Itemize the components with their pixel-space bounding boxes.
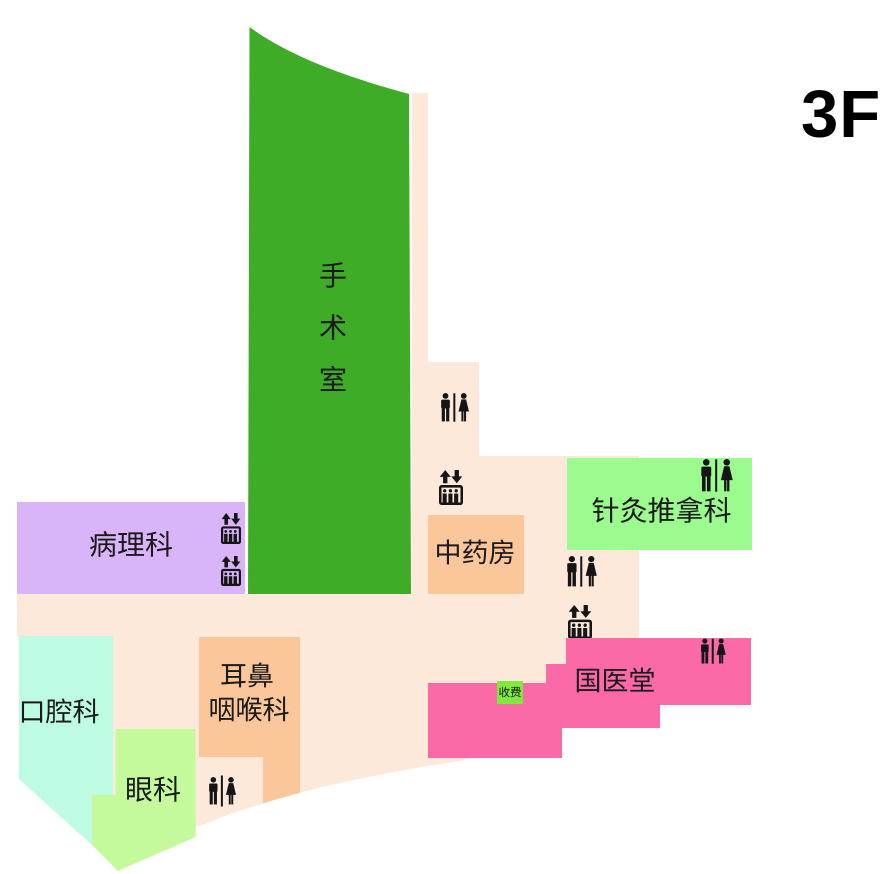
svg-text:3F: 3F [801,77,881,152]
